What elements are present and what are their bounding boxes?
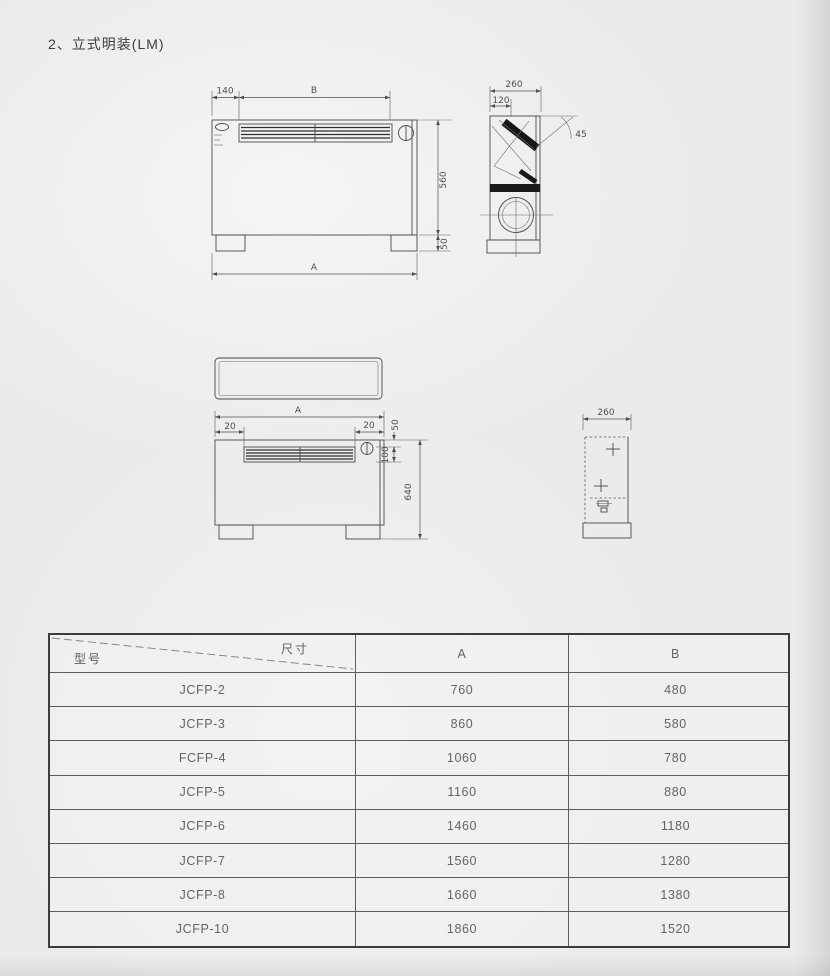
dim-560: 560 <box>439 171 449 188</box>
header-model-label: 型号 <box>74 650 102 667</box>
front-view-drawing: 140 B 560 50 A <box>212 86 452 280</box>
dim-b-cell: 1280 <box>568 844 782 877</box>
model-cell: JCFP-5 <box>50 776 355 809</box>
table-row: JCFP-3 860 580 <box>50 706 788 740</box>
fan-deck <box>490 184 540 192</box>
dim-a-cell: 1660 <box>355 878 568 911</box>
mid-side-view-drawing: 260 <box>583 408 631 538</box>
model-cell: FCFP-4 <box>50 741 355 774</box>
table-row: JCFP-5 1160 880 <box>50 775 788 809</box>
left-foot <box>216 235 245 251</box>
table-header-row: 型号 尺寸 A B <box>50 635 788 672</box>
dim-640: 640 <box>404 483 414 500</box>
model-cell: JCFP-3 <box>50 707 355 740</box>
mid-front-view-drawing: A 20 20 <box>215 406 428 539</box>
right-foot-2 <box>346 525 380 539</box>
dim-b-cell: 580 <box>568 707 782 740</box>
model-cell: JCFP-8 <box>50 878 355 911</box>
diagonal-header-cell: 型号 尺寸 <box>50 635 355 672</box>
table-row: JCFP-10 1860 1520 <box>50 911 788 945</box>
drain-fitting <box>596 501 612 512</box>
model-cell: JCFP-6 <box>50 810 355 843</box>
dim-A2: A <box>295 406 302 416</box>
dim-b-cell: 780 <box>568 741 782 774</box>
pipe-connection-marks <box>594 443 620 492</box>
dim-a-cell: 1860 <box>355 912 568 945</box>
cabinet-outline <box>212 120 417 235</box>
air-grille-2 <box>244 447 355 462</box>
control-knob <box>399 126 414 141</box>
scanned-document-page: 2、立式明装(LM) <box>0 0 830 976</box>
model-cell: JCFP-10 <box>50 912 355 945</box>
dim-a-cell: 1460 <box>355 810 568 843</box>
technical-drawings: 140 B 560 50 A <box>0 0 830 610</box>
table-row: JCFP-6 1460 1180 <box>50 809 788 843</box>
side-section-drawing: 260 120 45 <box>480 80 587 257</box>
table-row: JCFP-2 760 480 <box>50 672 788 706</box>
dim-a-cell: 760 <box>355 673 568 706</box>
left-foot-2 <box>219 525 253 539</box>
dim-b-cell: 1380 <box>568 878 782 911</box>
side-base-2 <box>583 523 631 538</box>
dim-b-cell: 880 <box>568 776 782 809</box>
side-base <box>487 240 540 253</box>
dim-260-2: 260 <box>597 408 614 418</box>
table-row: FCFP-4 1060 780 <box>50 740 788 774</box>
dim-20-left: 20 <box>224 422 236 432</box>
dimension-table: 型号 尺寸 A B JCFP-2 760 480 JCFP-3 860 580 … <box>48 633 790 948</box>
dim-20-right: 20 <box>363 421 375 431</box>
header-size-label: 尺寸 <box>281 640 309 657</box>
control-knob-2 <box>361 443 373 455</box>
model-cell: JCFP-2 <box>50 673 355 706</box>
scan-edge-shadow-bottom <box>0 956 830 976</box>
dim-45deg: 45 <box>575 130 586 140</box>
table-row: JCFP-7 1560 1280 <box>50 843 788 877</box>
dim-140: 140 <box>216 87 233 97</box>
top-view-outline <box>215 358 382 399</box>
dim-b-cell: 480 <box>568 673 782 706</box>
dim-50-2: 50 <box>391 419 401 431</box>
dim-120: 120 <box>492 96 509 106</box>
table-row: JCFP-8 1660 1380 <box>50 877 788 911</box>
heat-exchanger-coil <box>504 122 537 148</box>
dim-260: 260 <box>505 80 522 90</box>
model-cell: JCFP-7 <box>50 844 355 877</box>
dim-a-cell: 1560 <box>355 844 568 877</box>
header-col-b: B <box>568 635 782 672</box>
dim-A: A <box>311 263 318 273</box>
corner-knob <box>216 124 229 131</box>
air-grille <box>239 124 392 142</box>
dim-b-cell: 1180 <box>568 810 782 843</box>
fan-scroll <box>480 197 553 257</box>
dim-a-cell: 1060 <box>355 741 568 774</box>
dim-50: 50 <box>440 238 450 250</box>
header-col-a: A <box>355 635 568 672</box>
dim-a-cell: 1160 <box>355 776 568 809</box>
dim-b-cell: 1520 <box>568 912 782 945</box>
drain-pan <box>520 171 536 182</box>
dim-B: B <box>311 86 317 96</box>
top-view-drawing <box>215 358 382 399</box>
right-foot <box>391 235 417 251</box>
dim-100: 100 <box>381 446 391 463</box>
dim-a-cell: 860 <box>355 707 568 740</box>
